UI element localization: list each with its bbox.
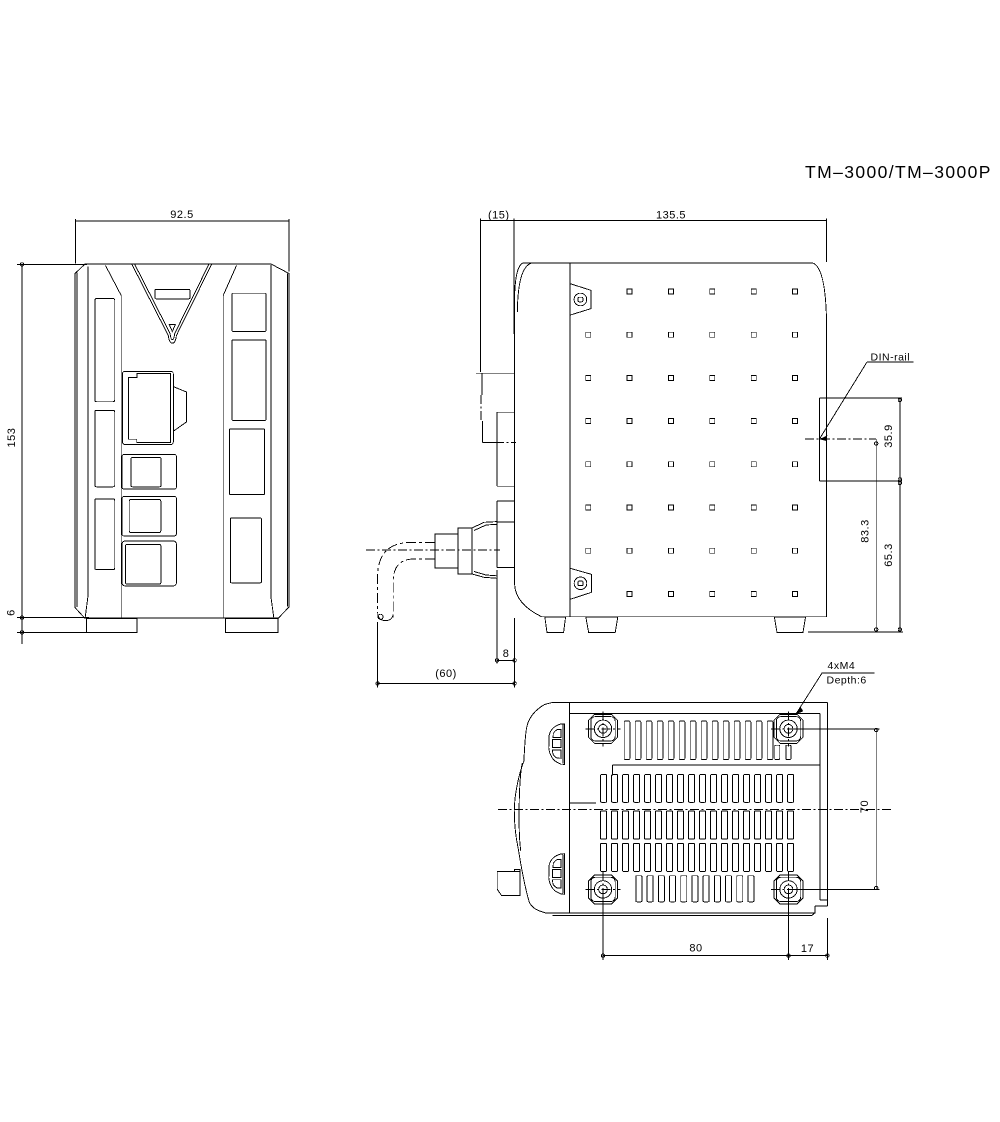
svg-text:DIN-rail: DIN-rail: [871, 351, 911, 363]
svg-text:(15): (15): [488, 209, 510, 221]
svg-text:92.5: 92.5: [170, 209, 193, 221]
svg-text:8: 8: [503, 648, 510, 660]
svg-text:17: 17: [801, 943, 814, 955]
svg-text:70: 70: [859, 800, 871, 813]
svg-text:83.3: 83.3: [859, 519, 871, 542]
svg-text:6: 6: [6, 609, 18, 616]
svg-text:35.9: 35.9: [883, 424, 895, 447]
svg-text:TM–3000/TM–3000P: TM–3000/TM–3000P: [805, 162, 992, 182]
svg-text:135.5: 135.5: [656, 209, 686, 221]
svg-text:(60): (60): [435, 668, 457, 680]
svg-text:65.3: 65.3: [883, 543, 895, 566]
svg-text:153: 153: [6, 428, 18, 448]
svg-text:80: 80: [689, 943, 702, 955]
svg-text:Depth:6: Depth:6: [827, 675, 867, 687]
svg-text:4xM4: 4xM4: [828, 660, 856, 672]
